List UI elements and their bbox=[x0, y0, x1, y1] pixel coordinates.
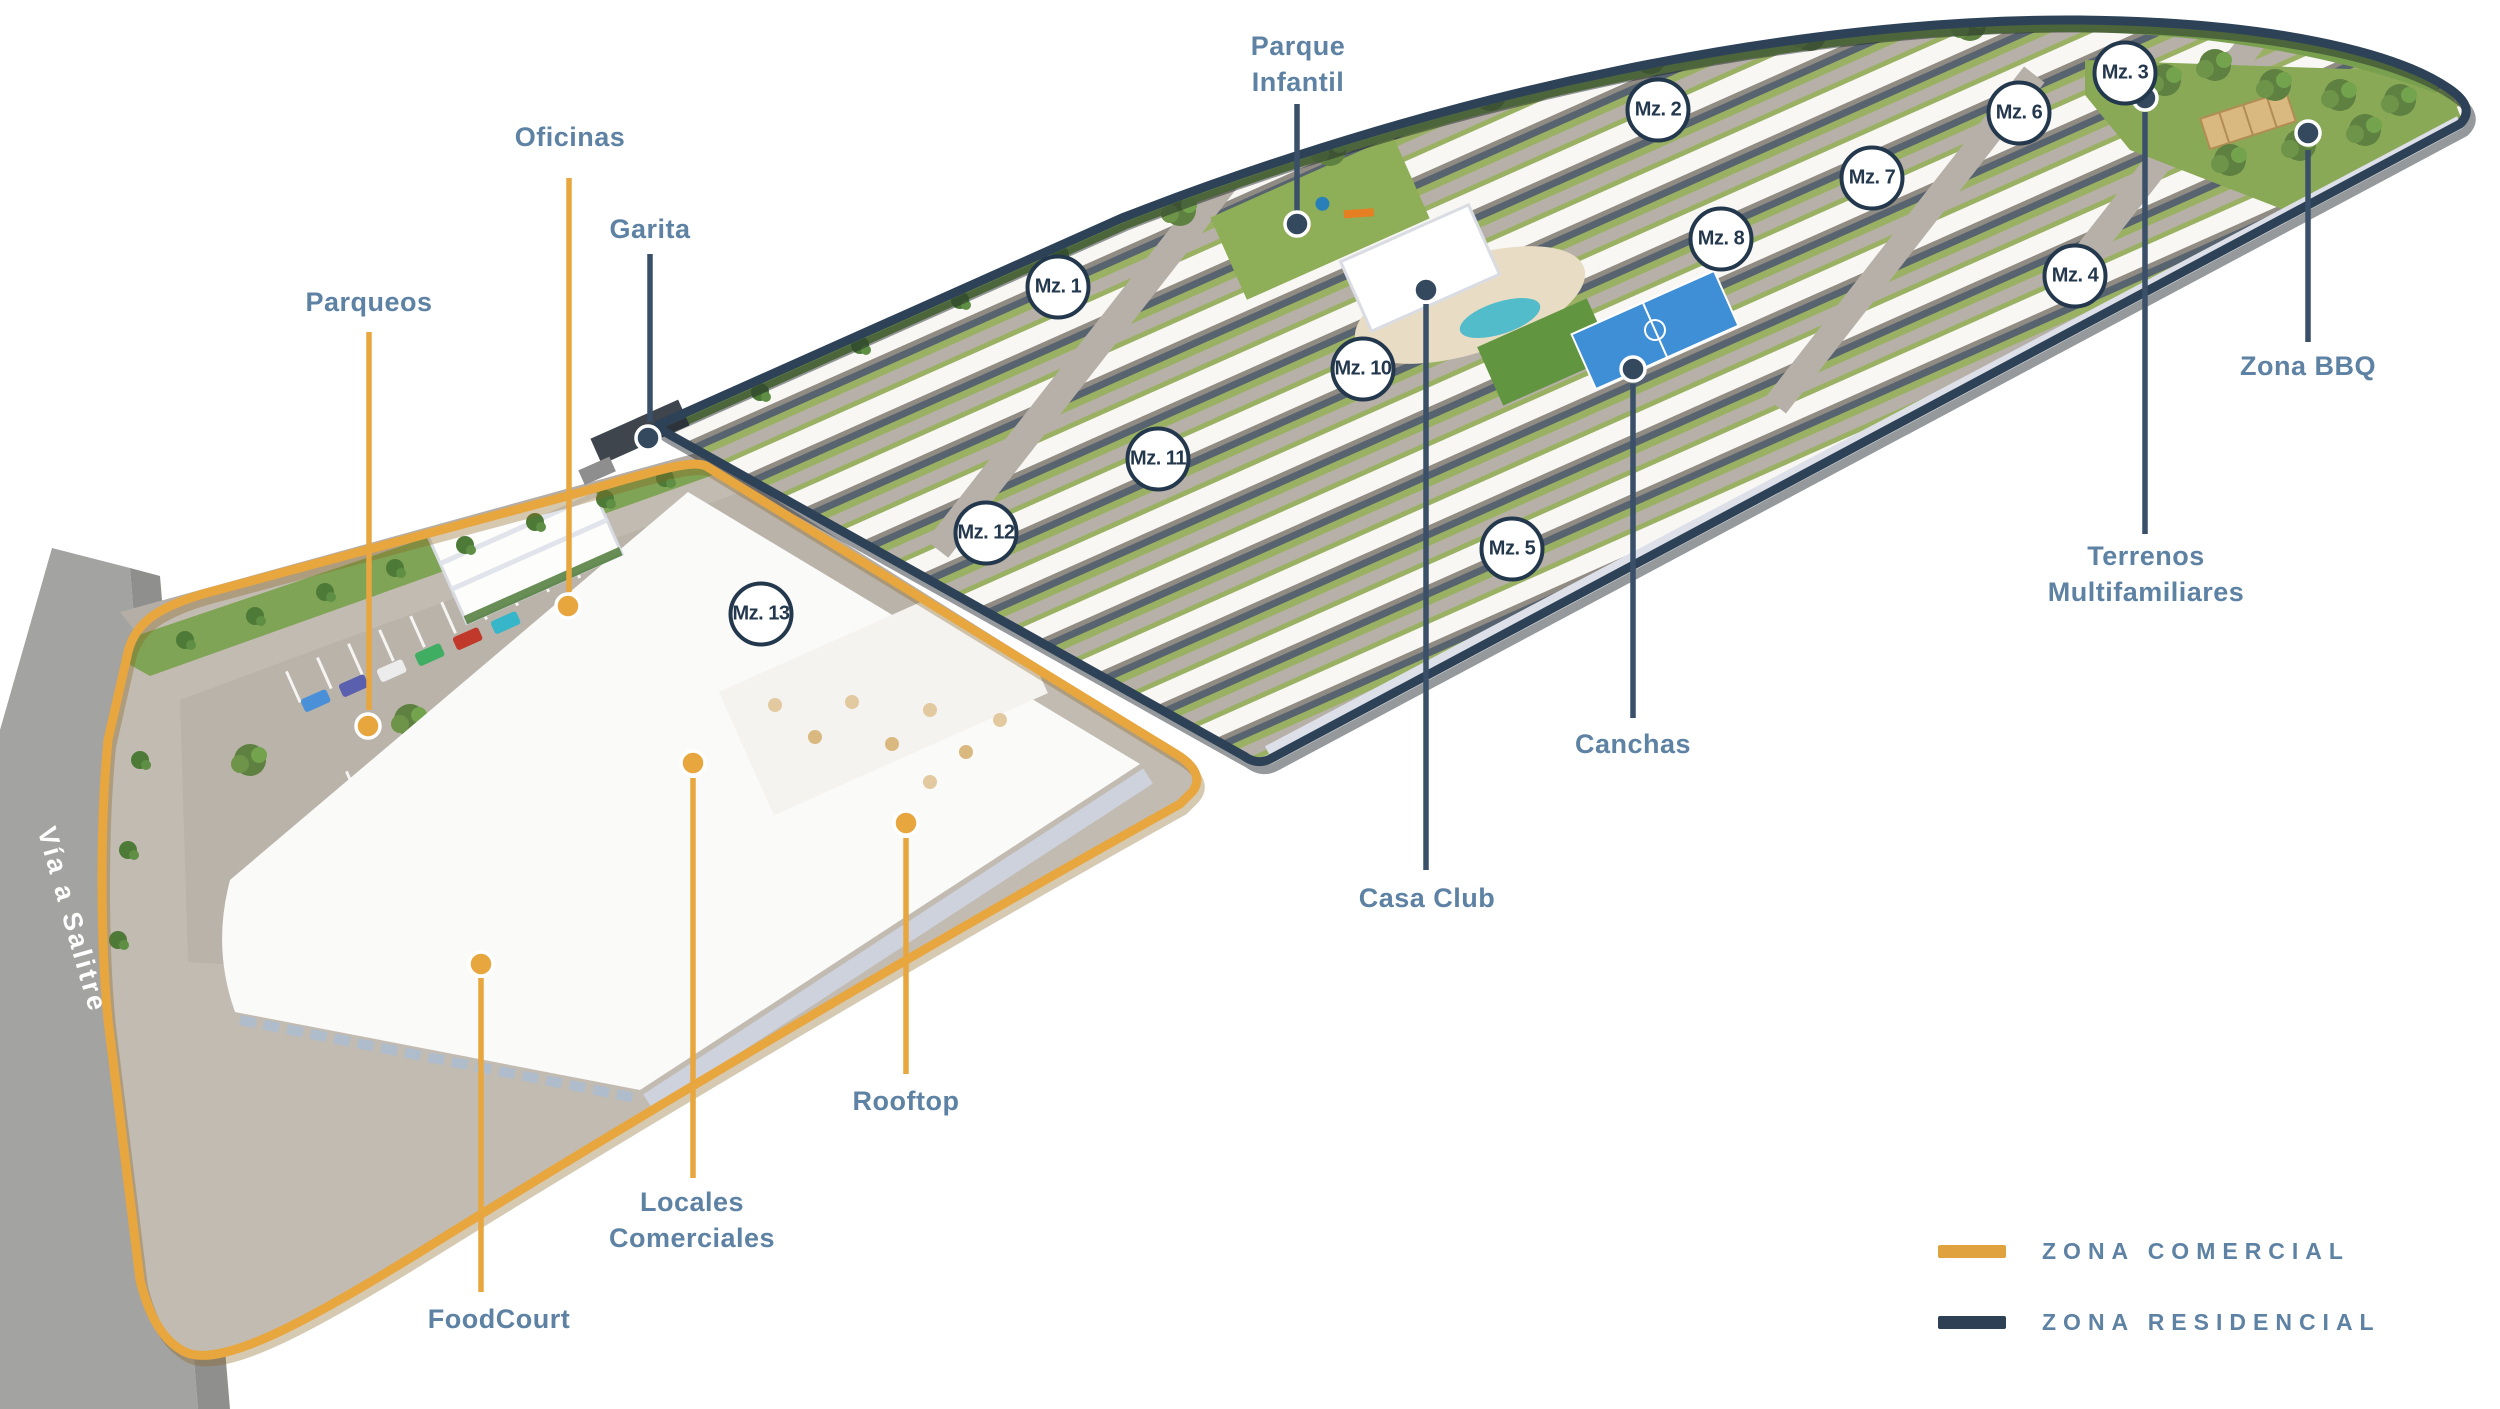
legend-label: ZONA RESIDENCIAL bbox=[2042, 1309, 2381, 1336]
label-rooftop: Rooftop bbox=[853, 1083, 960, 1119]
label-parqueos-line: Parqueos bbox=[305, 284, 432, 320]
mz-marker-7[interactable]: Mz. 7 bbox=[1840, 146, 1905, 211]
legend-item-zona-comercial: ZONA COMERCIAL bbox=[1938, 1238, 2381, 1265]
commercial-color-swatch bbox=[1938, 1245, 2006, 1258]
mz-marker-6[interactable]: Mz. 6 bbox=[1987, 81, 2052, 146]
masterplan-scene bbox=[0, 0, 2500, 1409]
legend-label: ZONA COMERCIAL bbox=[2042, 1238, 2350, 1265]
label-oficinas: Oficinas bbox=[515, 119, 626, 155]
mz-marker-10[interactable]: Mz. 10 bbox=[1331, 337, 1396, 402]
legend-item-zona-residencial: ZONA RESIDENCIAL bbox=[1938, 1309, 2381, 1336]
label-casa-club: Casa Club bbox=[1359, 880, 1496, 916]
label-oficinas-line: Oficinas bbox=[515, 119, 626, 155]
label-terrenos-multifamiliares-line: Multifamiliares bbox=[2048, 574, 2245, 610]
label-parque-infantil-line: Parque bbox=[1251, 28, 1346, 64]
mz-marker-8[interactable]: Mz. 8 bbox=[1689, 207, 1754, 272]
label-parque-infantil: ParqueInfantil bbox=[1251, 28, 1346, 100]
label-zona-bbq-line: Zona BBQ bbox=[2240, 348, 2376, 384]
mz-marker-4[interactable]: Mz. 4 bbox=[2043, 244, 2108, 309]
label-parqueos: Parqueos bbox=[305, 284, 432, 320]
label-foodcourt-line: FoodCourt bbox=[428, 1301, 570, 1337]
label-garita-line: Garita bbox=[609, 211, 690, 247]
mz-marker-13[interactable]: Mz. 13 bbox=[729, 582, 794, 647]
mz-marker-1[interactable]: Mz. 1 bbox=[1026, 255, 1091, 320]
residential-color-swatch bbox=[1938, 1316, 2006, 1329]
mz-marker-3[interactable]: Mz. 3 bbox=[2093, 41, 2158, 106]
legend: ZONA COMERCIAL ZONA RESIDENCIAL bbox=[1938, 1238, 2381, 1336]
label-garita: Garita bbox=[609, 211, 690, 247]
label-parque-infantil-line: Infantil bbox=[1251, 64, 1346, 100]
label-locales-comerciales: LocalesComerciales bbox=[609, 1184, 775, 1256]
label-canchas: Canchas bbox=[1575, 726, 1691, 762]
label-foodcourt: FoodCourt bbox=[428, 1301, 570, 1337]
label-zona-bbq: Zona BBQ bbox=[2240, 348, 2376, 384]
label-terrenos-multifamiliares: TerrenosMultifamiliares bbox=[2048, 538, 2245, 610]
label-rooftop-line: Rooftop bbox=[853, 1083, 960, 1119]
mz-marker-2[interactable]: Mz. 2 bbox=[1626, 78, 1691, 143]
label-locales-comerciales-line: Comerciales bbox=[609, 1220, 775, 1256]
label-casa-club-line: Casa Club bbox=[1359, 880, 1496, 916]
label-canchas-line: Canchas bbox=[1575, 726, 1691, 762]
mz-marker-11[interactable]: Mz. 11 bbox=[1126, 427, 1191, 492]
mz-marker-5[interactable]: Mz. 5 bbox=[1480, 517, 1545, 582]
label-locales-comerciales-line: Locales bbox=[609, 1184, 775, 1220]
label-terrenos-multifamiliares-line: Terrenos bbox=[2048, 538, 2245, 574]
mz-marker-12[interactable]: Mz. 12 bbox=[954, 501, 1019, 566]
